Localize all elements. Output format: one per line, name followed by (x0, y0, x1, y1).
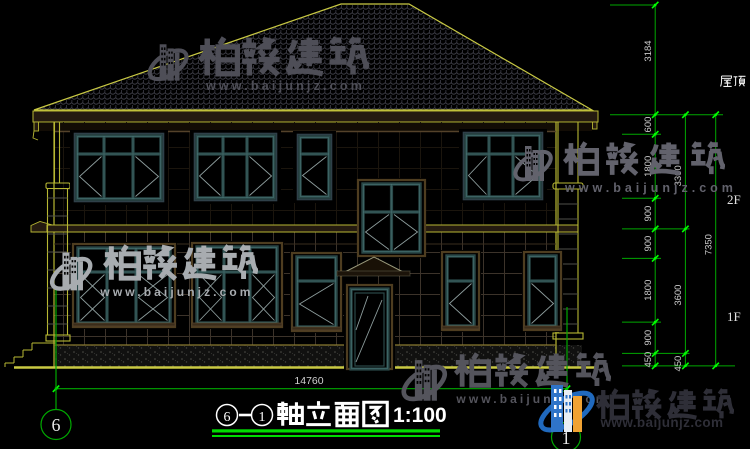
svg-text:www.baijunjz.com: www.baijunjz.com (564, 181, 737, 195)
svg-text:6: 6 (224, 410, 231, 425)
svg-text:www.baijunjz.com: www.baijunjz.com (205, 79, 365, 93)
svg-text:7350: 7350 (703, 234, 714, 255)
svg-text:3600: 3600 (673, 285, 684, 306)
svg-text:900: 900 (643, 330, 654, 346)
svg-text:1F: 1F (727, 309, 741, 324)
svg-text:3184: 3184 (643, 40, 654, 61)
svg-text:1800: 1800 (643, 280, 654, 301)
svg-text:450: 450 (643, 352, 654, 368)
svg-text:900: 900 (643, 206, 654, 222)
svg-text:6: 6 (52, 415, 61, 435)
svg-text:1:100: 1:100 (393, 404, 447, 427)
svg-text:1: 1 (259, 410, 266, 425)
svg-text:www.baijunjz.com: www.baijunjz.com (600, 415, 724, 430)
svg-text:900: 900 (643, 236, 654, 252)
svg-text:450: 450 (673, 356, 684, 372)
svg-text:www.baijunjz.com: www.baijunjz.com (99, 285, 253, 299)
svg-text:600: 600 (643, 117, 654, 133)
svg-text:14760: 14760 (294, 375, 323, 387)
